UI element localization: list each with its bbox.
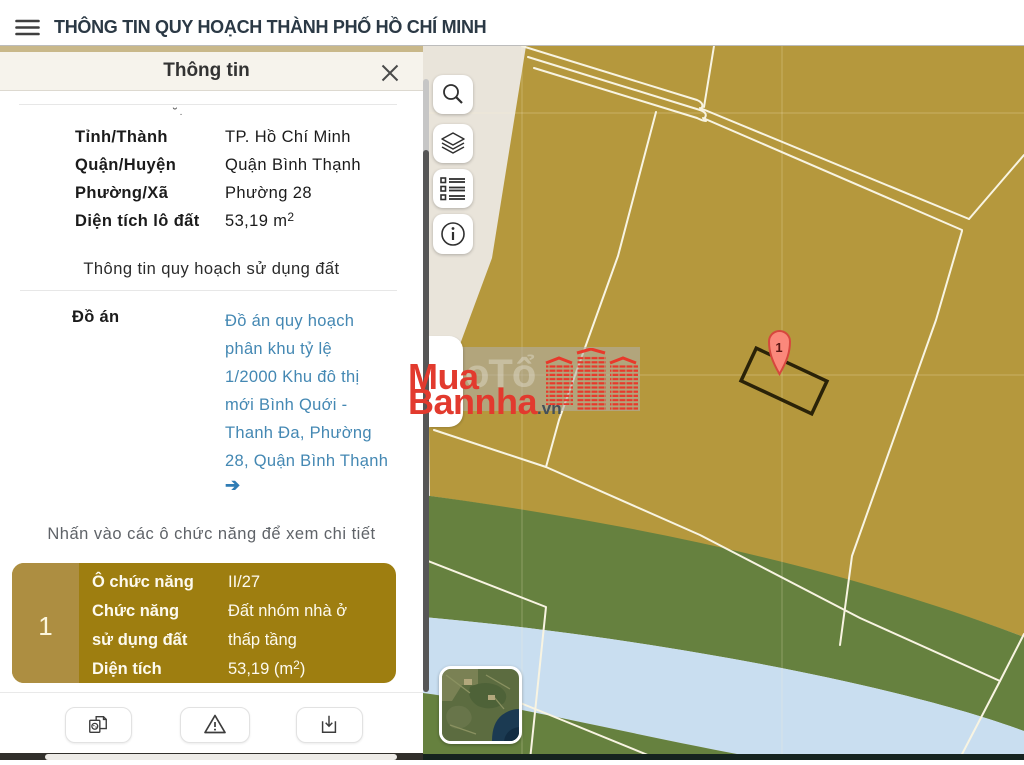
svg-text:1: 1 bbox=[775, 340, 782, 355]
